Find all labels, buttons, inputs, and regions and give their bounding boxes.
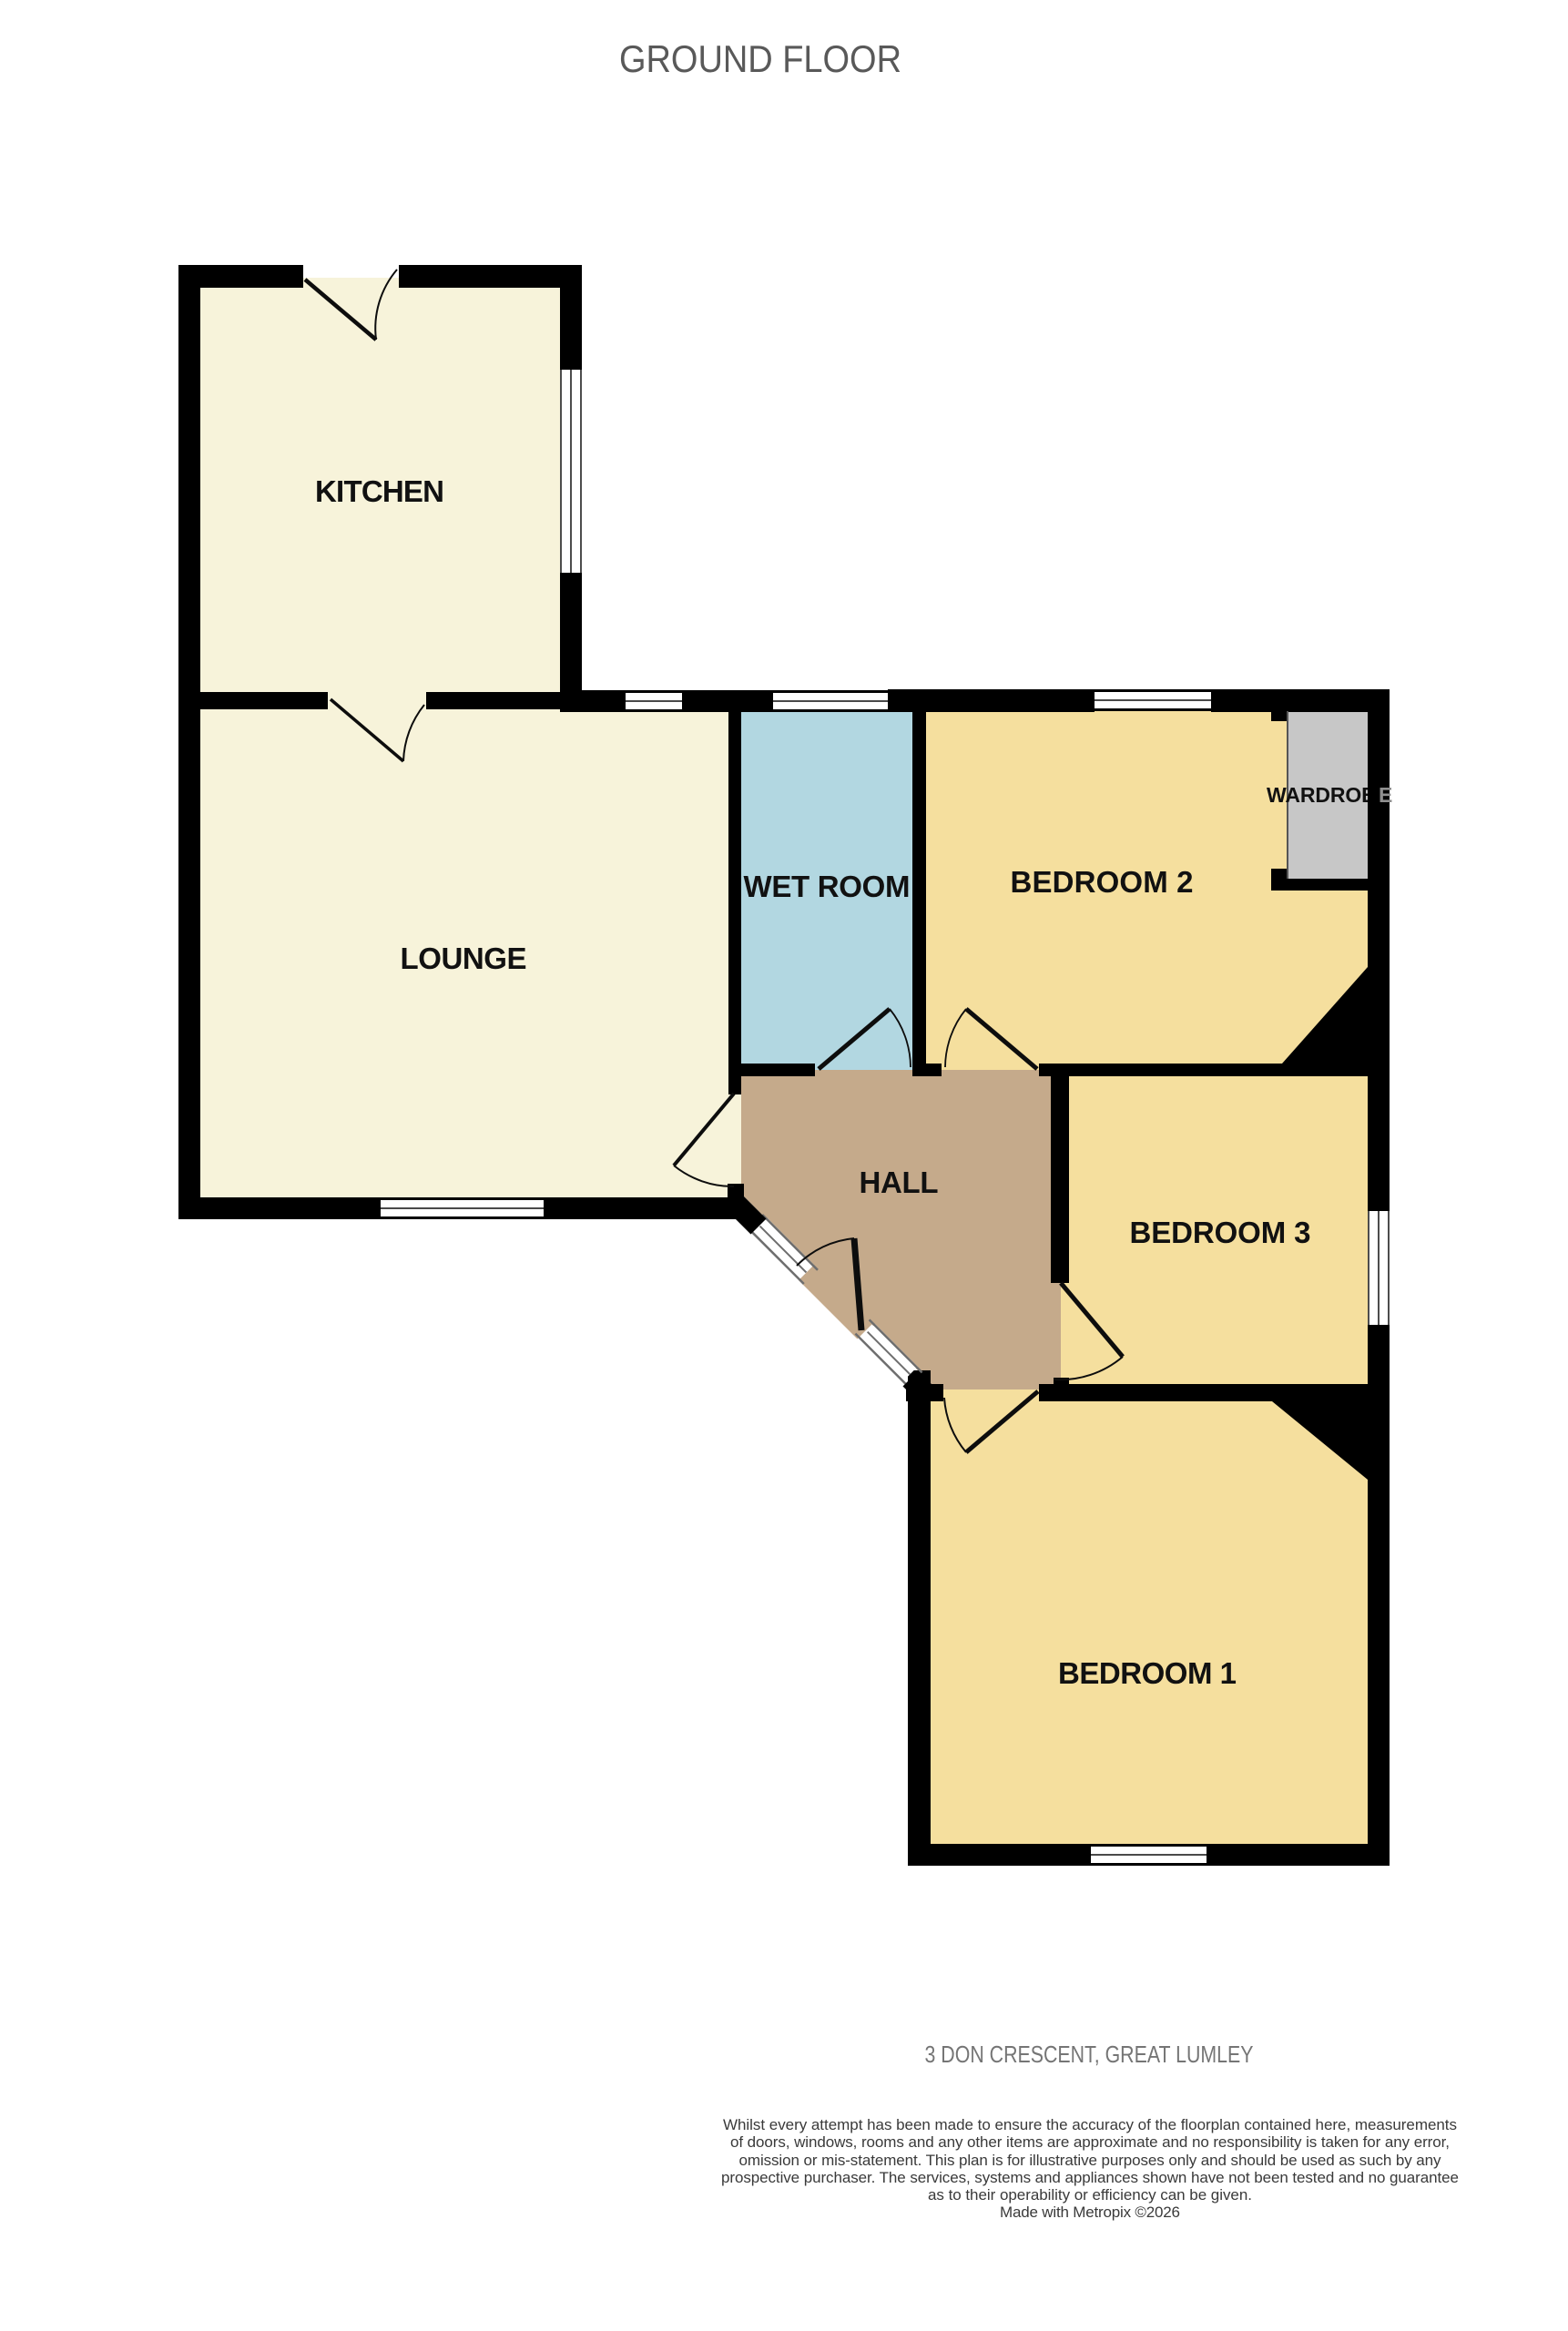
- svg-text:E: E: [1379, 783, 1392, 807]
- svg-text:omission or mis-statement. Thi: omission or mis-statement. This plan is …: [739, 2152, 1442, 2169]
- svg-text:WET ROOM: WET ROOM: [744, 870, 911, 903]
- svg-text:BEDROOM 2: BEDROOM 2: [1011, 865, 1194, 899]
- svg-text:3 DON CRESCENT, GREAT LUMLEY: 3 DON CRESCENT, GREAT LUMLEY: [925, 2041, 1254, 2068]
- svg-text:BEDROOM 3: BEDROOM 3: [1130, 1216, 1311, 1249]
- svg-text:of doors, windows, rooms and a: of doors, windows, rooms and any other i…: [730, 2133, 1450, 2151]
- svg-text:as to their operability or eff: as to their operability or efficiency ca…: [928, 2186, 1252, 2204]
- svg-text:HALL: HALL: [860, 1165, 939, 1199]
- svg-text:Made with Metropix ©2026: Made with Metropix ©2026: [1000, 2204, 1180, 2221]
- svg-text:KITCHEN: KITCHEN: [315, 474, 444, 508]
- svg-text:BEDROOM 1: BEDROOM 1: [1058, 1656, 1237, 1690]
- svg-text:GROUND FLOOR: GROUND FLOOR: [619, 37, 901, 80]
- svg-text:LOUNGE: LOUNGE: [401, 942, 527, 975]
- svg-text:Whilst every attempt has been: Whilst every attempt has been made to en…: [723, 2116, 1457, 2133]
- svg-text:prospective purchaser. The ser: prospective purchaser. The services, sys…: [721, 2169, 1459, 2186]
